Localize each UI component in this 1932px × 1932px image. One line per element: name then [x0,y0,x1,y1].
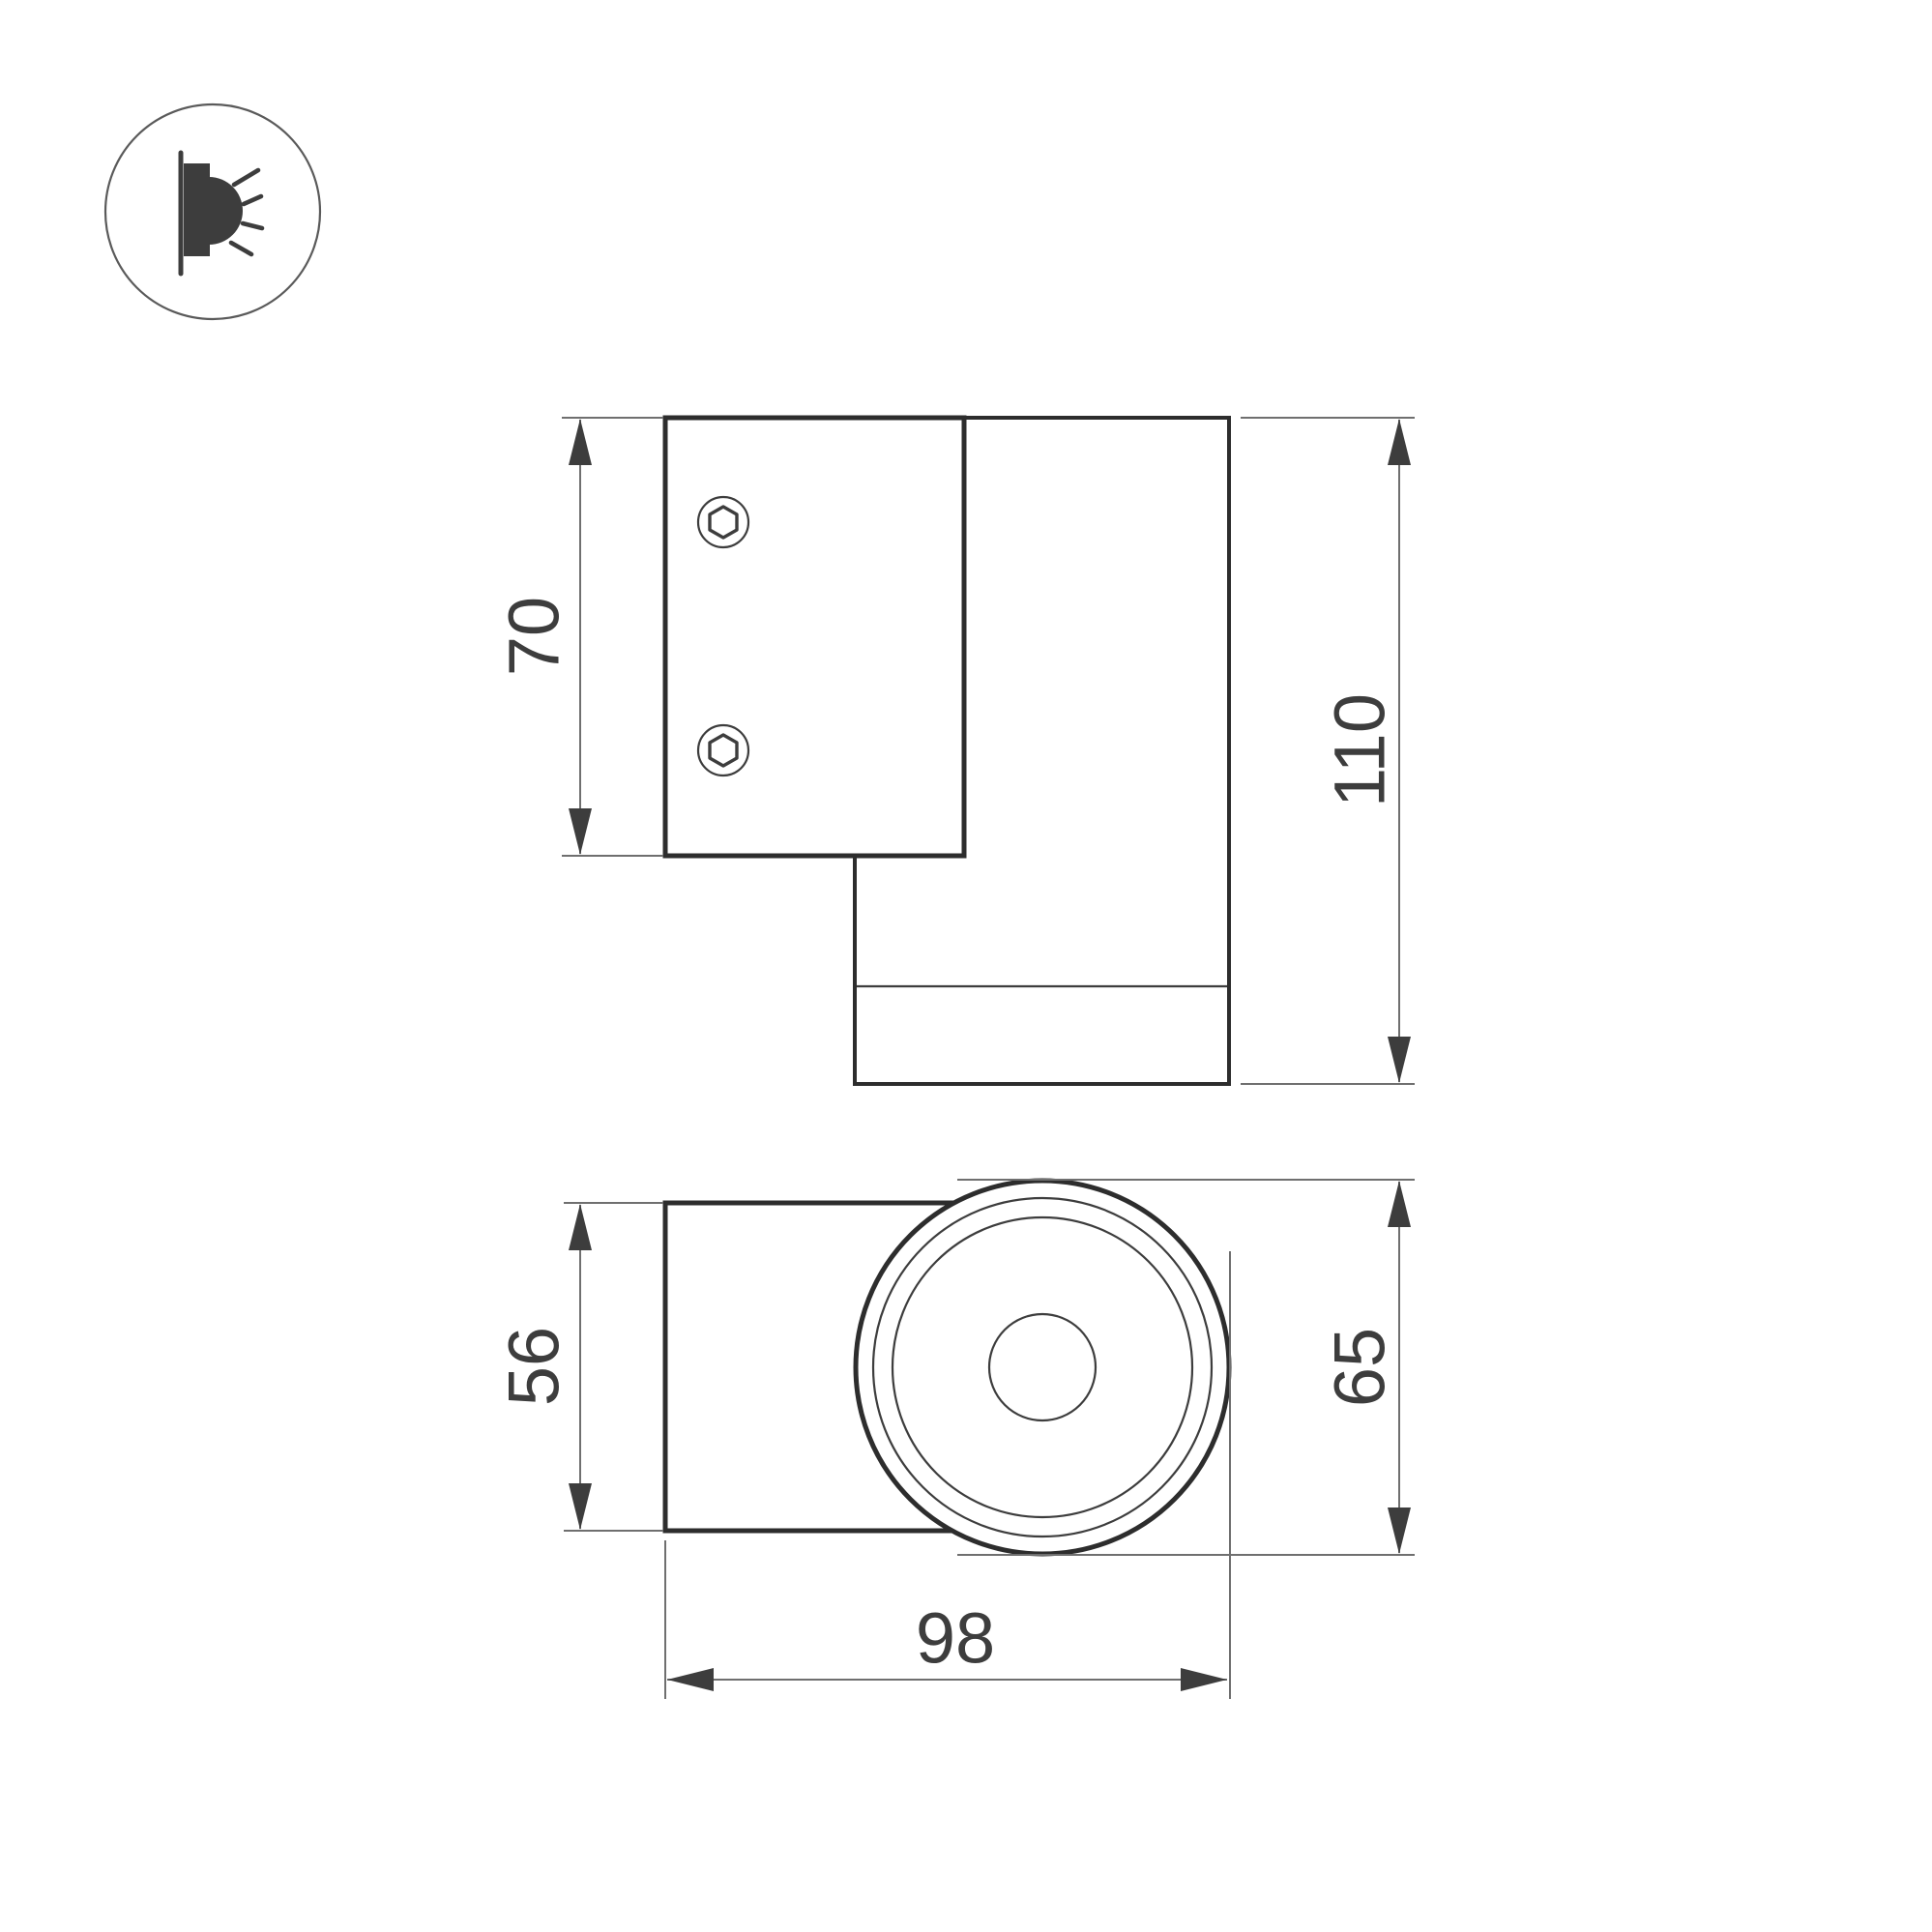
dimension-110: 110 [1241,418,1415,1084]
icon-light-ray [231,243,251,254]
icon-lamp-lens [209,177,243,245]
dimension-70-label: 70 [494,597,574,676]
arrow-up [569,1204,592,1250]
arrow-down [1388,1508,1411,1554]
wall-light-icon [105,104,320,319]
drawing-svg: 70 110 56 [0,0,1932,1932]
icon-lamp-body [184,163,210,256]
arrow-down [1388,1037,1411,1083]
dimension-56: 56 [494,1203,664,1531]
front-outer-circle [856,1181,1229,1554]
icon-light-ray [234,170,258,185]
arrow-down [569,808,592,855]
arrow-up [1388,1181,1411,1227]
arrow-down [569,1483,592,1530]
dimension-65-label: 65 [1320,1328,1400,1407]
dimension-70: 70 [494,418,664,856]
arrow-up [569,419,592,465]
arrow-up [1388,419,1411,465]
technical-drawing-page: 70 110 56 [0,0,1932,1932]
icon-light-ray [244,196,261,204]
bottom-view: 56 65 98 [494,1180,1416,1699]
arrow-left [667,1668,714,1691]
side-view: 70 110 [494,418,1416,1084]
dimension-110-label: 110 [1320,693,1400,807]
icon-light-ray [243,223,262,228]
dimension-56-label: 56 [494,1327,574,1406]
arrow-right [1181,1668,1227,1691]
mounting-plate [665,418,964,856]
dimension-98-label: 98 [916,1598,995,1679]
